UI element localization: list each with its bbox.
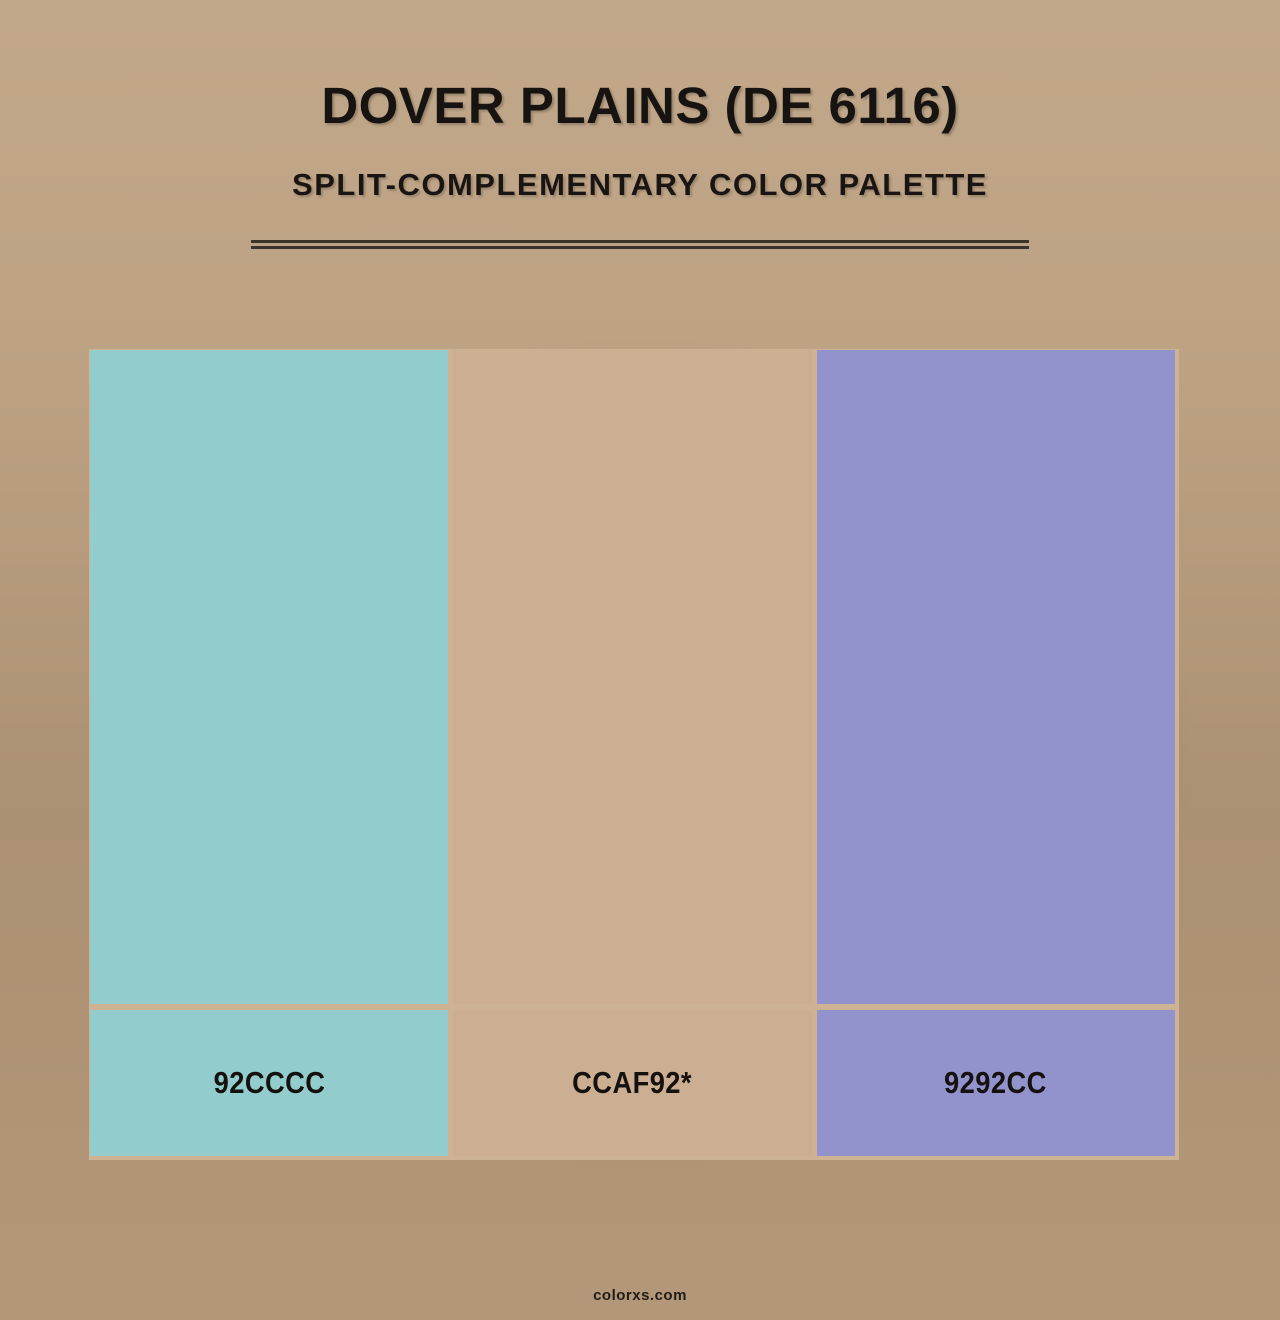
page-title: DOVER PLAINS (DE 6116)	[0, 76, 1280, 136]
page: DOVER PLAINS (DE 6116) SPLIT-COMPLEMENTA…	[0, 0, 1280, 1320]
footer-site-name: colorxs.com	[0, 1286, 1280, 1306]
palette-grid: 92CCCC CCAF92* 9292CC	[89, 349, 1179, 1160]
swatch-large-ccaf92	[453, 350, 811, 1004]
swatch-large-9292cc	[817, 350, 1175, 1004]
page-subtitle: SPLIT-COMPLEMENTARY COLOR PALETTE	[0, 165, 1280, 205]
swatch-hex-label: CCAF92*	[573, 1065, 693, 1101]
swatch-label-cell-ccaf92: CCAF92*	[453, 1010, 811, 1156]
swatch-label-cell-92cccc: 92CCCC	[90, 1010, 448, 1156]
swatch-label-cell-9292cc: 9292CC	[817, 1010, 1175, 1156]
swatch-hex-label: 92CCCC	[213, 1065, 325, 1101]
header-divider	[251, 240, 1029, 249]
swatch-hex-label: 9292CC	[944, 1065, 1047, 1101]
swatch-large-92cccc	[90, 350, 448, 1004]
